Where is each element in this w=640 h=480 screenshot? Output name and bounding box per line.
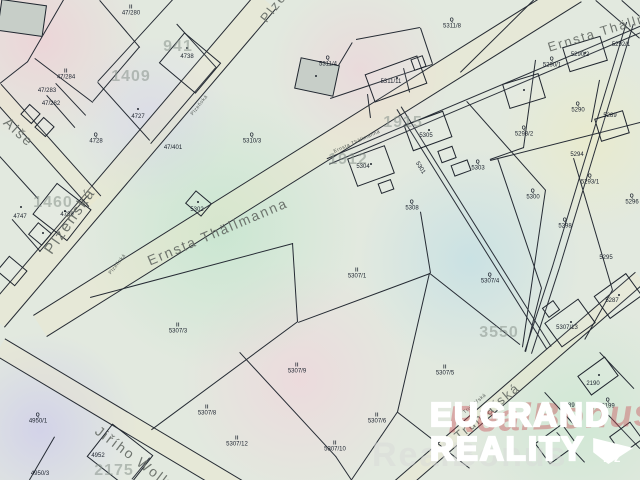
parcel-number-label: Q5310/3 xyxy=(243,134,261,145)
parcel-number-text: 5290 xyxy=(571,108,584,114)
building-point-icon xyxy=(20,206,22,208)
parcel-boundary xyxy=(292,243,298,322)
parcel-number-label: Q4950/1 xyxy=(29,414,47,425)
logo-arrow-icon xyxy=(593,438,633,464)
parcel-boundary xyxy=(298,273,430,323)
parcel-number-text: 5289 xyxy=(603,113,616,119)
parcel-number-text: 2190 xyxy=(586,381,599,387)
parcel-number-label: Q5293/1 xyxy=(581,175,599,186)
parcel-number-label: 5294 xyxy=(570,152,583,158)
parcel-number-label: II5307/12 xyxy=(226,437,248,448)
parcel-number-label: II5307/10 xyxy=(324,442,346,453)
parcel-number-text: 5295 xyxy=(599,255,612,261)
map-sheet-number: 2175 xyxy=(94,462,134,480)
parcel-number-label: 5302 xyxy=(190,207,203,213)
parcel-number-text: 4738 xyxy=(180,54,193,60)
parcel-number-text: 47/284 xyxy=(57,75,75,81)
parcel-number-label: 5305 xyxy=(419,133,432,139)
parcel-number-text: 47/283 xyxy=(38,88,56,94)
parcel-number-text: 47/280 xyxy=(122,11,140,17)
parcel-number-label: 4747 xyxy=(13,214,26,220)
parcel-number-text: 4952 xyxy=(91,453,104,459)
parcel-number-label: II5307/1 xyxy=(348,269,366,280)
parcel-boundary xyxy=(0,61,28,84)
parcel-number-text: 5311/11 xyxy=(381,79,402,85)
parcel-boundary xyxy=(397,273,430,412)
parcel-number-label: 4952 xyxy=(91,453,104,459)
parcel-number-text: 5310/3 xyxy=(243,139,261,145)
parcel-number-label: 47/401 xyxy=(164,145,182,151)
parcel-number-label: 5311/11 xyxy=(381,79,402,85)
parcel-number-label: Q5290 xyxy=(571,103,584,114)
parcel-number-label: Q5300 xyxy=(526,190,539,201)
logo-line1: EUGRAND xyxy=(430,398,611,432)
parcel-number-text: 5307/5 xyxy=(436,371,454,377)
cadastral-map-viewport[interactable]: 941140914601915191235502175 II47/280II47… xyxy=(0,0,640,480)
building-footprint xyxy=(450,159,471,176)
parcel-boundary xyxy=(151,321,298,430)
parcel-number-text: 5293/2 xyxy=(515,132,533,138)
parcel-number-text: 5301 xyxy=(414,161,426,176)
parcel-number-text: 5303 xyxy=(471,166,484,172)
parcel-number-label: 47/283 xyxy=(38,88,56,94)
parcel-number-text: 5298 xyxy=(558,224,571,230)
parcel-boundary xyxy=(356,27,420,40)
parcel-boundary xyxy=(0,156,38,199)
parcel-number-label: Q5311/4 xyxy=(319,57,337,68)
parcel-number-text: 5293/1 xyxy=(581,180,599,186)
parcel-number-text: 4950/1 xyxy=(29,419,47,425)
building-footprint xyxy=(378,178,395,193)
parcel-number-label: II5307/5 xyxy=(436,366,454,377)
parcel-boundary xyxy=(466,101,546,191)
parcel-number-text: 5302 xyxy=(190,207,203,213)
parcel-number-text: 5305 xyxy=(419,133,432,139)
parcel-number-text: 5287 xyxy=(605,298,618,304)
map-sheet-number: 1409 xyxy=(111,68,151,86)
parcel-number-label: 5289 xyxy=(603,113,616,119)
parcel-number-text: 5300 xyxy=(526,195,539,201)
parcel-number-label: Q5298 xyxy=(558,219,571,230)
parcel-boundary xyxy=(97,82,150,141)
parcel-number-text: 5307/6 xyxy=(368,419,386,425)
parcel-number-label: 5301 xyxy=(414,161,426,176)
parcel-number-label: 5292/1 xyxy=(612,42,630,48)
parcel-number-text: 4727 xyxy=(131,114,144,120)
building-footprint xyxy=(0,0,47,37)
parcel-number-label: Q5311/8 xyxy=(443,19,461,30)
parcel-number-text: 5308 xyxy=(405,206,418,212)
parcel-number-label: Q4728 xyxy=(89,134,102,145)
parcel-number-label: 4950/3 xyxy=(31,471,49,477)
parcel-number-label: II5307/6 xyxy=(368,414,386,425)
parcel-number-text: 4747 xyxy=(13,214,26,220)
parcel-number-text: 47/401 xyxy=(164,145,182,151)
parcel-number-text: 5307/4 xyxy=(481,279,499,285)
parcel-number-label: 2190 xyxy=(586,381,599,387)
map-sheet-number: 3550 xyxy=(479,324,519,342)
parcel-number-label: 4727 xyxy=(131,114,144,120)
parcel-number-label: II47/284 xyxy=(57,70,75,81)
building-footprint xyxy=(437,145,456,163)
parcel-number-label: Q5290/1 xyxy=(543,58,561,69)
parcel-number-text: 5307/9 xyxy=(288,369,306,375)
parcel-number-label: 4738 xyxy=(180,54,193,60)
parcel-number-label: II5307/8 xyxy=(198,406,216,417)
parcel-number-text: 5307/13 xyxy=(556,325,578,331)
parcel-number-text: 5311/4 xyxy=(319,62,337,68)
parcel-number-text: 5307/12 xyxy=(226,442,248,448)
parcel-number-label: 5287 xyxy=(605,298,618,304)
parcel-number-text: 5307/1 xyxy=(348,274,366,280)
parcel-number-label: Q5307/4 xyxy=(481,274,499,285)
parcel-boundary xyxy=(420,212,431,273)
parcel-number-text: 5307/8 xyxy=(198,411,216,417)
parcel-number-label: 5307/13 xyxy=(556,325,578,331)
parcel-number-label: 5295 xyxy=(599,255,612,261)
parcel-number-label: 5304 xyxy=(356,164,369,170)
parcel-number-label: Q5303 xyxy=(471,161,484,172)
parcel-number-text: 5296 xyxy=(625,200,638,206)
parcel-number-text: 47/282 xyxy=(42,101,60,107)
parcel-number-text: 5294 xyxy=(570,152,583,158)
parcel-number-label: 5290/2 xyxy=(571,52,589,58)
parcel-number-text: 5290/1 xyxy=(543,63,561,69)
parcel-number-text: 5292/1 xyxy=(612,42,630,48)
parcel-number-text: 4728 xyxy=(89,139,102,145)
parcel-number-label: Q5293/2 xyxy=(515,127,533,138)
parcel-number-label: Q5308 xyxy=(405,201,418,212)
parcel-number-label: II5307/9 xyxy=(288,364,306,375)
eugrand-reality-logo: EUGRAND REALITY xyxy=(430,398,633,466)
parcel-number-text: 5311/8 xyxy=(443,24,461,30)
logo-line2: REALITY xyxy=(430,432,585,466)
parcel-number-label: Q5296 xyxy=(625,195,638,206)
parcel-number-text: 5307/10 xyxy=(324,447,346,453)
parcel-boundary xyxy=(335,456,352,480)
parcel-number-text: 5307/3 xyxy=(169,329,187,335)
parcel-number-label: 47/282 xyxy=(42,101,60,107)
parcel-number-text: 5290/2 xyxy=(571,52,589,58)
parcel-number-label: II47/280 xyxy=(122,6,140,17)
parcel-number-label: II5307/3 xyxy=(169,324,187,335)
map-sheet-number: 1915 xyxy=(383,114,423,132)
parcel-number-text: 4950/3 xyxy=(31,471,49,477)
street-name-label: Plzeňská xyxy=(257,0,311,25)
parcel-number-text: 5304 xyxy=(356,164,369,170)
building-point-icon xyxy=(137,108,139,110)
